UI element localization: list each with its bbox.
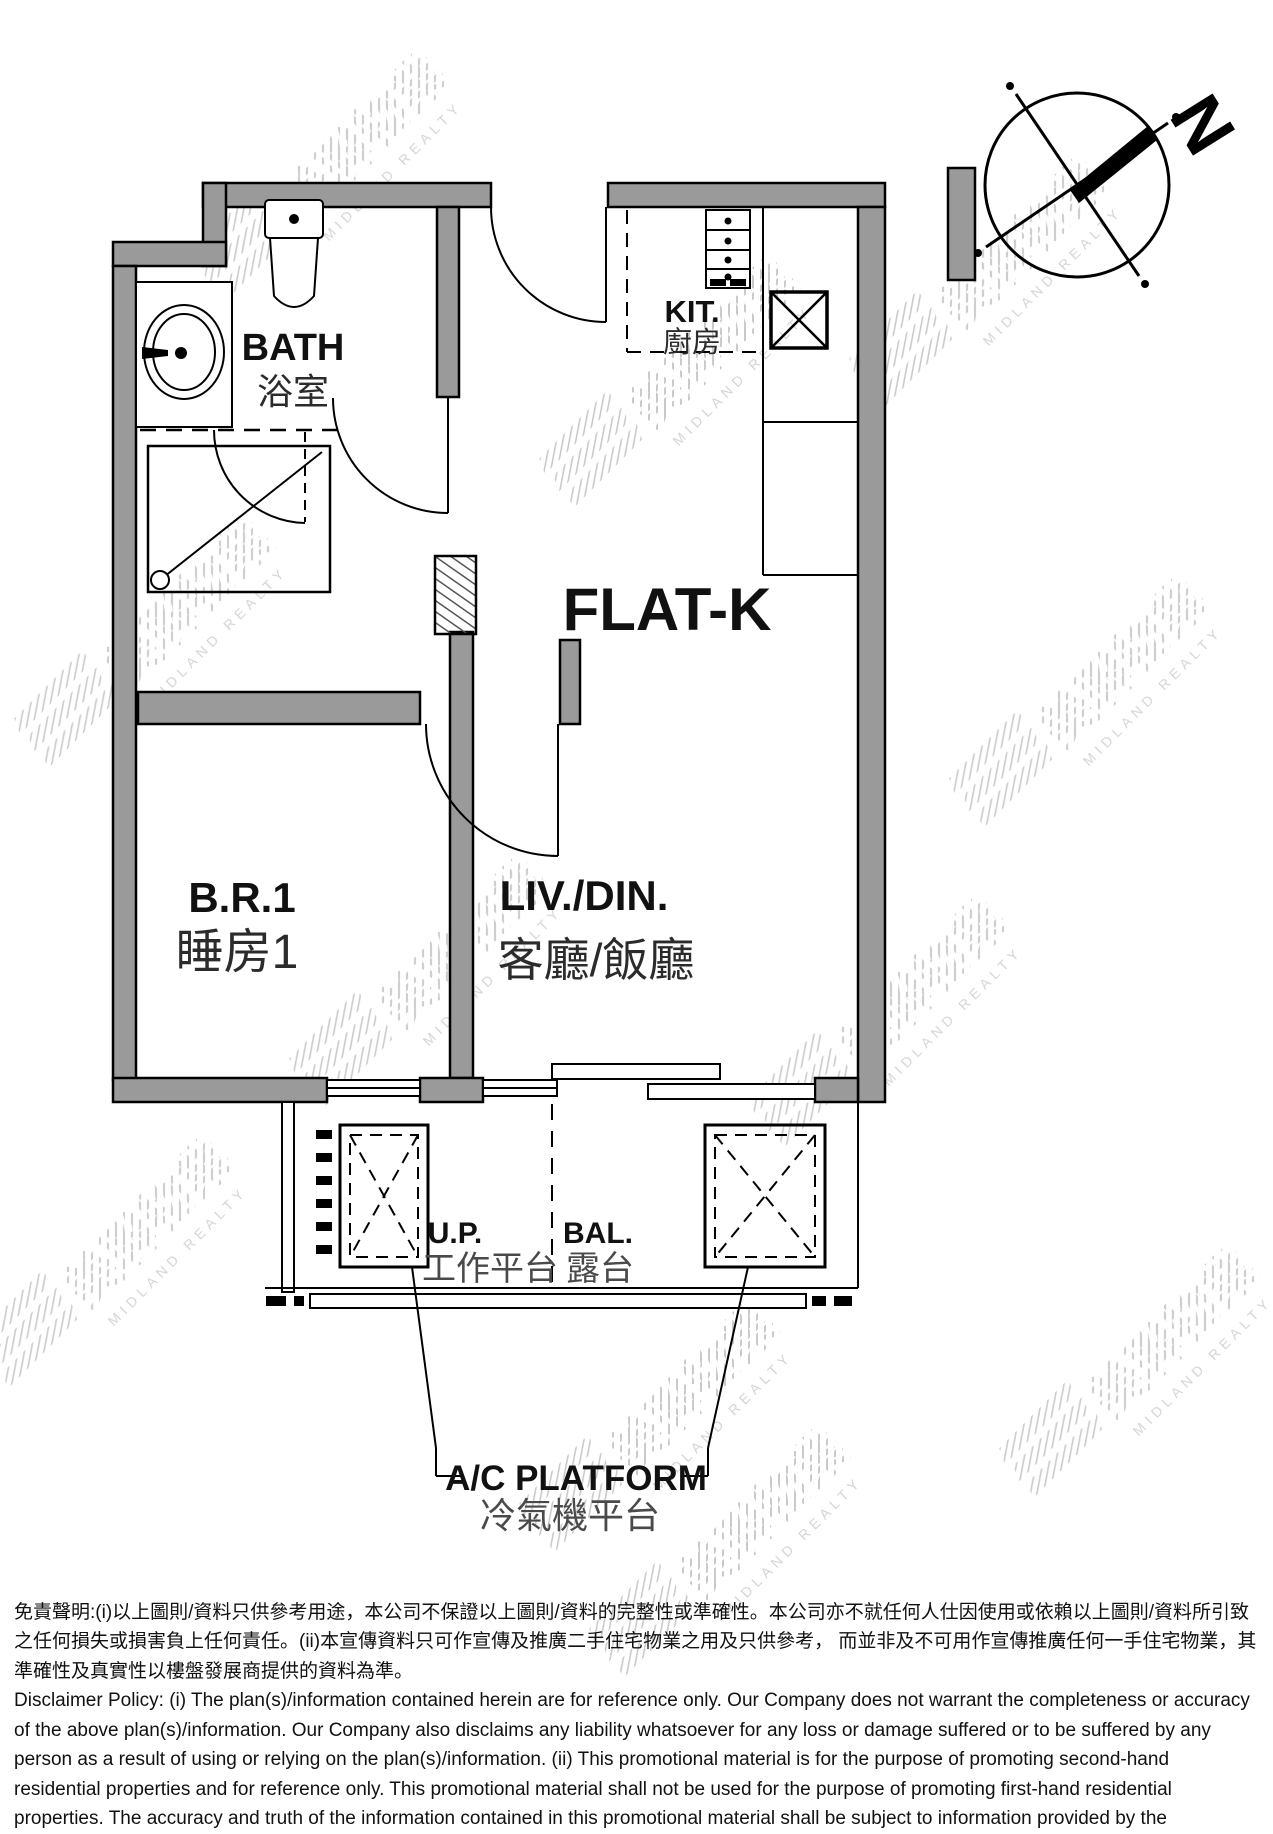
disclaimer-block: 免責聲明:(i)以上圖則/資料只供參考用途，本公司不保證以上圖則/資料的完整性或… xyxy=(14,1598,1260,1834)
bal-label-zh: 露台 xyxy=(566,1250,634,1288)
up-label-en: U.P. xyxy=(428,1217,482,1250)
entry-door-arc xyxy=(491,207,606,322)
flat-label: FLAT-K xyxy=(563,576,772,643)
basin-drain xyxy=(175,347,187,359)
wall-left-step xyxy=(113,242,226,266)
balcony-utility xyxy=(265,1102,858,1476)
wall-bath-east xyxy=(437,207,459,397)
bath-door-arc xyxy=(333,398,448,513)
bedroom1-label-en: B.R.1 xyxy=(188,874,295,921)
toilet-button xyxy=(289,214,299,224)
up-vent-ticks xyxy=(316,1130,332,1254)
ac-platform-label-en: A/C PLATFORM xyxy=(445,1459,707,1498)
wall-pier-right xyxy=(815,1078,858,1102)
balcony-rail xyxy=(310,1294,806,1308)
bath-label-en: BATH xyxy=(242,327,345,369)
watermark xyxy=(520,240,824,544)
kitchen-label-en: KIT. xyxy=(664,294,719,329)
bedroom1-label-zh: 睡房1 xyxy=(176,926,299,979)
bal-label-en: BAL. xyxy=(563,1217,633,1250)
sliding-door-panel-2 xyxy=(648,1084,815,1099)
sliding-door-panel-1 xyxy=(552,1064,720,1079)
wall-left xyxy=(113,266,136,1080)
living-label-en: LIV./DIN. xyxy=(500,872,669,919)
wall-bedroom-south xyxy=(113,1078,327,1102)
rail-end-dashes xyxy=(266,1296,852,1306)
cabinet-handle xyxy=(711,280,725,285)
ac-unit-left xyxy=(350,1135,418,1257)
compass-dot xyxy=(1141,280,1149,288)
doors xyxy=(214,207,606,856)
up-label-zh: 工作平台 xyxy=(422,1250,558,1288)
disclaimer-en: Disclaimer Policy: (i) The plan(s)/infor… xyxy=(14,1686,1260,1834)
kitchen-label-zh: 廚房 xyxy=(663,326,721,359)
structural-column xyxy=(435,556,476,634)
ac-platform-label-zh: 冷氣機平台 xyxy=(480,1495,660,1536)
wall-bedroom-living-divider xyxy=(450,632,473,1078)
wall-top-bath xyxy=(203,183,491,207)
floor-plan-drawing: 美聯物業 MIDLAND REALTY N xyxy=(0,0,1273,1834)
wall-corridor xyxy=(560,640,580,724)
disclaimer-zh: 免責聲明:(i)以上圖則/資料只供參考用途，本公司不保證以上圖則/資料的完整性或… xyxy=(14,1598,1260,1686)
toilet-bowl xyxy=(270,238,318,307)
wall-neighbour-stub xyxy=(948,168,975,280)
south-openings xyxy=(327,1064,815,1099)
ac-unit-right xyxy=(715,1135,815,1257)
wall-right xyxy=(858,207,885,1102)
bedroom-door-arc xyxy=(426,724,558,856)
compass-dot xyxy=(1006,82,1014,90)
living-label-zh: 客廳/飯廳 xyxy=(498,934,695,986)
wall-top-kitchen xyxy=(608,183,885,207)
wall-bedroom-north xyxy=(138,692,420,724)
cabinet-knob xyxy=(726,239,731,244)
cabinet-knob xyxy=(726,275,731,280)
floor-plan-page: 美聯物業 MIDLAND REALTY N xyxy=(0,0,1273,1834)
watermark xyxy=(0,1120,259,1424)
cabinet-knob xyxy=(726,258,731,263)
up-west-wall xyxy=(282,1102,294,1292)
wall-pier-center xyxy=(420,1078,483,1102)
compass-north-label: N xyxy=(1154,82,1249,168)
watermark xyxy=(980,1230,1273,1534)
watermark xyxy=(0,500,299,804)
cabinet-handle xyxy=(731,280,745,285)
bath-label-zh: 浴室 xyxy=(257,371,329,412)
shower-drain xyxy=(151,571,169,589)
cabinet-knob xyxy=(726,219,731,224)
watermark xyxy=(930,560,1234,864)
